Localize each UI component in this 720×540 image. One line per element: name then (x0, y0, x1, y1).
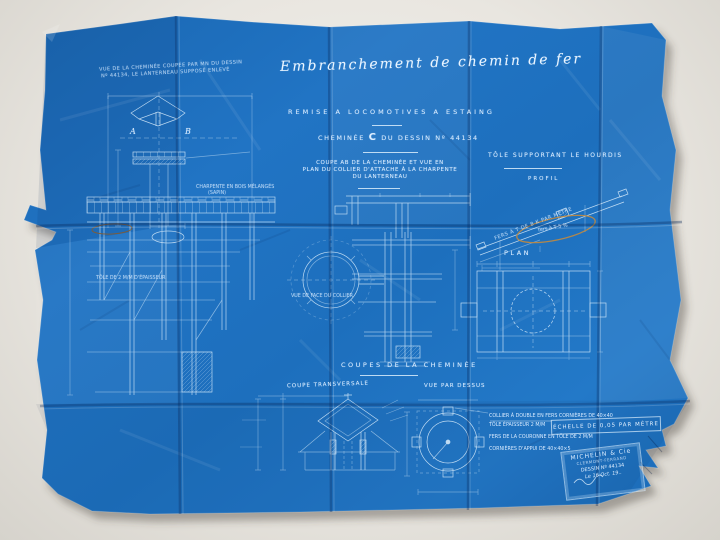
plan-label: PLAN (504, 249, 531, 257)
scale-text: ÉCHELLE DE 0,05 PAR MÈTRE (553, 421, 659, 431)
drawing-ref-rule (363, 152, 418, 153)
section-marker-b: B (185, 127, 191, 137)
center-note-rule (358, 188, 400, 189)
drawing-ref-post: DU DESSIN Nº 44134 (381, 134, 479, 142)
charpente-note-line2: (SAPIN) (208, 191, 226, 197)
subtitle: REMISE A LOCOMOTIVES A ESTAING (288, 108, 466, 116)
center-note-line2: PLAN DU COLLIER D'ATTACHE À LA CHARPENTE (290, 167, 470, 174)
note-line: FERS DE LA COURONNE EN TÔLE DE 2 M/M (489, 435, 599, 440)
center-note-line3: DU LANTERNEAU (290, 174, 470, 181)
center-note-line1: COUPE AB DE LA CHEMINÉE ET VUE EN (290, 160, 470, 167)
michelin-stamp: MICHELIN & Cie CLERMONT-FERRAND DESSIN N… (560, 442, 645, 500)
coupes-title: COUPES DE LA CHEMINÉE (341, 361, 478, 369)
collier-note: VUE DE FACE DU COLLIER (291, 294, 353, 300)
center-note: COUPE AB DE LA CHEMINÉE ET VUE EN PLAN D… (290, 160, 470, 181)
right-section-sub: PROFIL (528, 176, 559, 183)
subtitle-rule (372, 125, 402, 126)
right-section-title: TÔLE SUPPORTANT LE HOURDIS (488, 152, 623, 160)
vue-par-dessus-label: VUE PAR DESSUS (424, 383, 486, 390)
drawing-ref-letter: C (369, 132, 378, 143)
right-section-rule (504, 168, 562, 169)
drawing-ref-pre: CHEMINÉE (318, 134, 365, 142)
drawing-ref: CHEMINÉE C DU DESSIN Nº 44134 (318, 132, 468, 145)
photo-of-blueprint: VUE DE LA CHEMINÉE COUPÉE PAR MN DU DESS… (0, 0, 720, 540)
section-marker-a: A (130, 127, 136, 137)
coupes-rule (360, 375, 418, 376)
tole-note: TÔLE DE 2 M/M D'ÉPAISSEUR (96, 276, 165, 282)
